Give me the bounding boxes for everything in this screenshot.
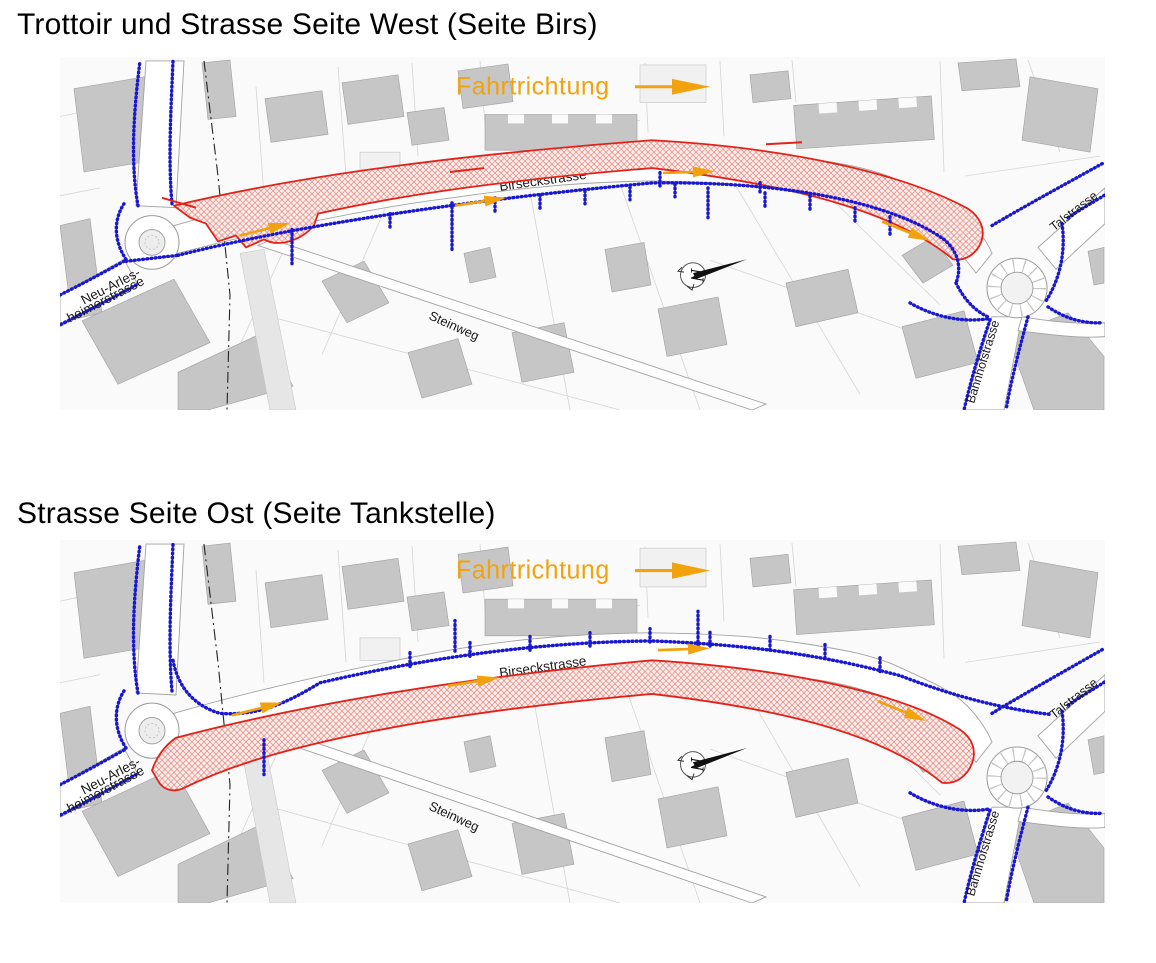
- map-svg-ost: [60, 540, 1105, 903]
- section-title-west: Trottoir und Strasse Seite West (Seite B…: [17, 8, 598, 42]
- map-panel-west: [60, 57, 1105, 410]
- basemap-ost: [60, 540, 1105, 903]
- map-panel-ost: [60, 540, 1105, 903]
- map-svg-west: [60, 57, 1105, 410]
- section-title-ost: Strasse Seite Ost (Seite Tankstelle): [17, 497, 496, 531]
